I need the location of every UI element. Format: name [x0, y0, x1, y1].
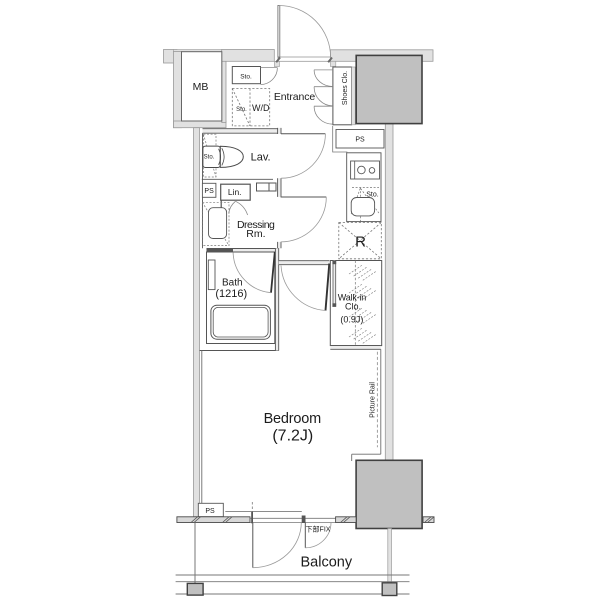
svg-text:Sto.: Sto. — [204, 155, 215, 161]
svg-text:(1216): (1216) — [215, 288, 247, 300]
svg-text:Balcony: Balcony — [301, 555, 353, 571]
svg-text:Bedroom: Bedroom — [264, 411, 322, 427]
svg-text:Lin.: Lin. — [228, 187, 242, 197]
svg-text:Shoes Clo.: Shoes Clo. — [342, 71, 349, 105]
svg-text:Entrance: Entrance — [274, 91, 315, 103]
svg-text:W/D: W/D — [252, 103, 270, 113]
svg-text:PS: PS — [205, 508, 215, 515]
svg-text:PS: PS — [204, 188, 214, 195]
svg-text:Clo.: Clo. — [345, 301, 361, 311]
svg-text:下部FIX: 下部FIX — [306, 525, 331, 534]
svg-text:MB: MB — [193, 81, 209, 93]
svg-text:(0.9J): (0.9J) — [340, 315, 363, 325]
svg-text:Lav.: Lav. — [251, 152, 271, 164]
svg-text:R: R — [355, 234, 366, 251]
svg-text:(7.2J): (7.2J) — [272, 427, 313, 444]
svg-text:Sto.: Sto. — [236, 107, 247, 113]
svg-text:Picture Rail: Picture Rail — [370, 382, 377, 418]
svg-text:PS: PS — [355, 137, 365, 144]
svg-text:Rm.: Rm. — [246, 228, 265, 240]
svg-text:Sto.: Sto. — [240, 73, 252, 80]
